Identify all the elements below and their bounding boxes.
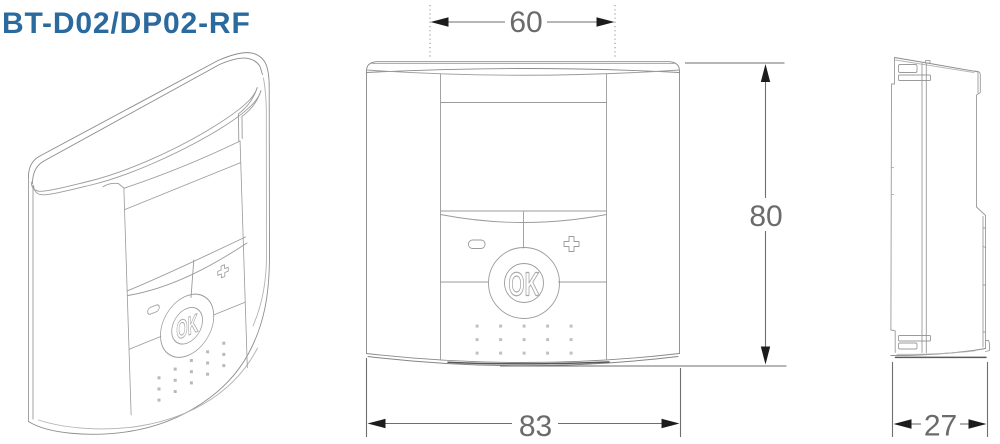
svg-text:OK: OK bbox=[509, 265, 540, 302]
svg-text:83: 83 bbox=[519, 410, 552, 443]
svg-text:OK: OK bbox=[176, 309, 199, 346]
svg-text:27: 27 bbox=[924, 410, 957, 443]
svg-text:BT-D02/DP02-RF: BT-D02/DP02-RF bbox=[2, 7, 251, 40]
svg-text:80: 80 bbox=[749, 200, 782, 233]
svg-text:60: 60 bbox=[509, 6, 542, 39]
